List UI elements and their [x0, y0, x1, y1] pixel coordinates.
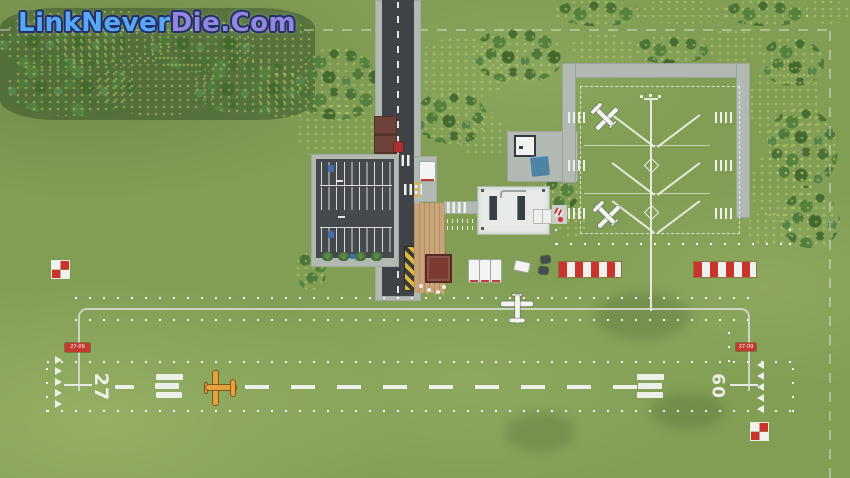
- rooftop-pipe: [500, 190, 526, 198]
- tiedown-anchors: [568, 160, 585, 171]
- tailplane: [509, 319, 524, 323]
- tiedown-anchors: [715, 208, 732, 219]
- crosswalk: [404, 184, 422, 195]
- tree-cluster: [636, 36, 708, 64]
- threshold-chevron: [757, 383, 764, 391]
- threshold-chevron: [55, 356, 62, 364]
- tree-cluster: [725, 0, 810, 26]
- segmented-marker[interactable]: [694, 262, 756, 277]
- threshold-bar: [637, 392, 663, 398]
- tiedown-anchors: [715, 112, 732, 123]
- watermark-text-blue: LinkNever: [18, 8, 171, 38]
- rooftop-vent: [481, 227, 484, 230]
- dotted-line: [75, 297, 759, 299]
- white-van[interactable]: [490, 259, 502, 283]
- runway-edge-dots: [47, 410, 793, 412]
- tree-cluster: [748, 212, 792, 246]
- equipment-pad: [542, 209, 552, 224]
- picnic-table: [442, 285, 446, 289]
- threshold-chevron: [55, 367, 62, 375]
- threshold-chevron: [55, 400, 62, 408]
- rooftop-ac-unit: [517, 196, 525, 220]
- segmented-marker[interactable]: [559, 262, 621, 277]
- tiedown-anchors: [568, 208, 585, 219]
- dark-car[interactable]: [541, 255, 551, 263]
- threshold-chevron: [757, 394, 764, 402]
- threshold-bar: [156, 374, 183, 380]
- runway-plane[interactable]: [205, 371, 239, 405]
- dark-car[interactable]: [539, 267, 549, 275]
- watermark: LinkNeverDie.Com: [18, 8, 296, 38]
- threshold-chevron: [757, 372, 764, 380]
- grass-patch: [505, 412, 575, 452]
- tree-cluster: [572, 34, 637, 64]
- hedge: [322, 252, 333, 261]
- tree-cluster: [635, 0, 730, 24]
- checkered-corner-marker[interactable]: [52, 261, 69, 278]
- cafe-building[interactable]: [425, 254, 452, 283]
- threshold-bar: [637, 374, 664, 380]
- blue-car[interactable]: [350, 254, 355, 259]
- runway-number-09: 09: [705, 370, 735, 400]
- runway-centerline: [245, 385, 639, 389]
- threshold-chevron: [55, 378, 62, 386]
- threshold-bar: [156, 392, 182, 398]
- apron-taxi-line-end: [644, 98, 658, 100]
- threshold-chevron: [55, 389, 62, 397]
- tree-cluster: [458, 115, 510, 157]
- boundary-line-right: [829, 29, 831, 478]
- dotted-line: [555, 204, 557, 245]
- tree-cluster: [475, 28, 563, 83]
- control-tower[interactable]: [514, 135, 536, 157]
- runway-end-dots: [792, 362, 794, 412]
- dotted-line: [789, 217, 791, 245]
- runway-hold-sign[interactable]: 27-09: [65, 343, 90, 352]
- rooftop-vent: [542, 189, 545, 192]
- rooftop-ac-unit: [489, 196, 497, 220]
- bike-rack-ticks: [447, 219, 479, 223]
- watermark-text-purple: Die.Com: [171, 8, 297, 38]
- white-car[interactable]: [513, 259, 531, 273]
- apron-dot: [640, 95, 643, 98]
- pool[interactable]: [530, 155, 550, 177]
- threshold-chevron: [757, 405, 764, 413]
- windsock-base: [558, 217, 563, 222]
- rooftop-vent: [481, 189, 484, 192]
- runway-end-dots: [46, 362, 48, 412]
- runway-centerline-dash: [115, 385, 134, 389]
- apron-dot: [658, 95, 661, 98]
- crosswalk: [447, 202, 468, 213]
- hedge: [355, 252, 366, 261]
- taxiing-plane[interactable]: [501, 294, 533, 326]
- checkered-corner-marker[interactable]: [751, 423, 768, 440]
- handicap-space-icon: [328, 165, 334, 172]
- hedge: [371, 252, 382, 261]
- runway-number-27: 27: [86, 372, 116, 402]
- red-car[interactable]: [394, 142, 403, 152]
- picnic-table: [427, 288, 431, 292]
- tree-cluster: [556, 0, 641, 26]
- airfield-map: 27 09 27-09 27-09 LinkNeverDie.Com: [0, 0, 850, 478]
- tiedown-anchors: [715, 160, 732, 171]
- aisle-arrow: [338, 216, 345, 218]
- picnic-table: [419, 284, 423, 288]
- apron-row-line: [584, 145, 710, 146]
- bus[interactable]: [419, 161, 436, 182]
- parking-stalls: [321, 187, 391, 210]
- threshold-bar: [638, 383, 662, 389]
- dotted-line: [556, 243, 792, 245]
- parking-line: [320, 185, 392, 186]
- hedge: [338, 252, 349, 261]
- roadside-building[interactable]: [374, 116, 397, 136]
- threshold-chevron: [757, 361, 764, 369]
- tree-cluster: [805, 0, 850, 24]
- picnic-table: [436, 290, 440, 294]
- tower-roof-hatch: [519, 146, 523, 149]
- apron-dot: [649, 94, 652, 97]
- tree-cluster: [702, 30, 764, 62]
- tailplane: [231, 380, 235, 396]
- threshold-bar: [155, 383, 179, 389]
- bus-stop-zigzag: [415, 180, 419, 197]
- apron-path-top: [562, 63, 750, 78]
- bike-rack-ticks: [447, 226, 479, 230]
- aisle-arrow: [336, 180, 343, 182]
- handicap-space-icon: [328, 231, 334, 238]
- runway-hold-sign[interactable]: 27-09: [736, 343, 756, 351]
